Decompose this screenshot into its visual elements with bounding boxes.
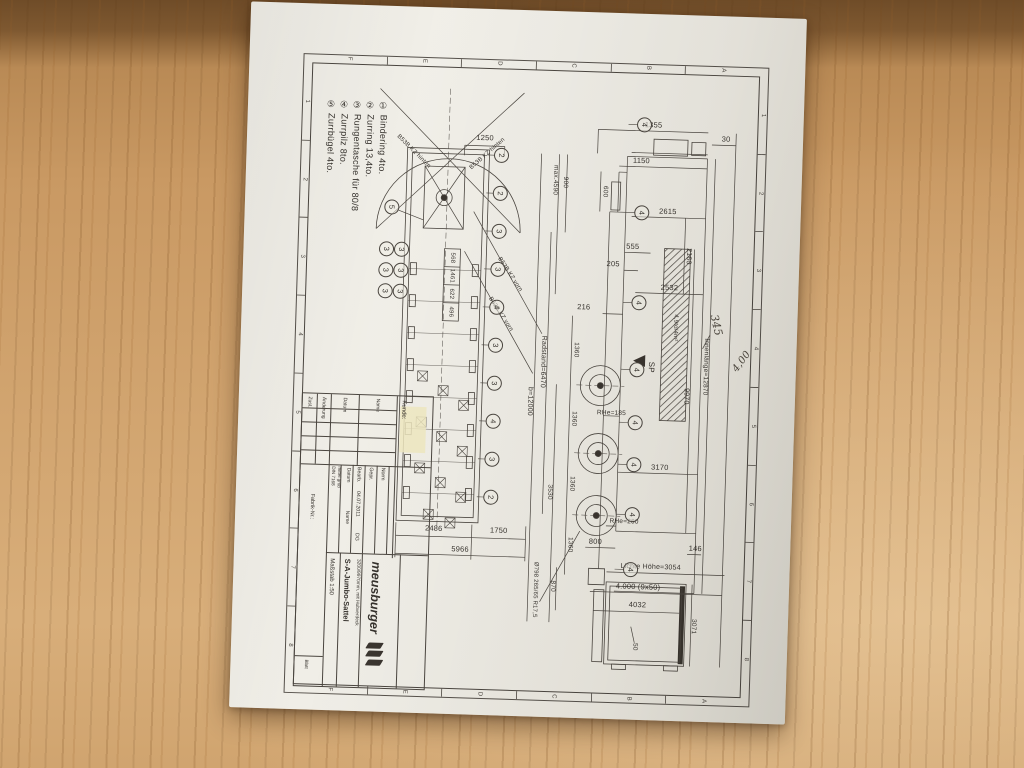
titleblock-divider [396, 554, 401, 688]
grid-reference: C [550, 694, 556, 699]
blatt-label: Blatt [303, 659, 308, 668]
dim-label: 205 [606, 260, 619, 268]
dim-label: 50 [631, 643, 638, 651]
titleblock-divider [326, 552, 428, 556]
dim-label: 2160 [685, 248, 693, 265]
dim-label: 4032 [629, 601, 647, 609]
grid-reference: E [421, 59, 427, 63]
bearb-name: DG [353, 533, 358, 541]
meusburger-logo [366, 639, 389, 674]
grid-reference: 2 [757, 192, 763, 196]
dim-label: 1150 [633, 157, 650, 165]
grid-reference: F [346, 57, 352, 61]
bearb-label: Bearb. [355, 467, 361, 482]
dim-label: 800 [589, 538, 602, 546]
dim-label: 216 [577, 303, 590, 311]
dim-label: 496 [447, 306, 453, 317]
product-subtitle: 3200/9970mm, mit Hubverdeck [353, 559, 360, 626]
dim-label: 1360 [566, 537, 573, 552]
grid-reference: 6 [748, 503, 754, 507]
titleblock-divider [374, 466, 378, 554]
dim-label: Innenlänge=12870 [701, 338, 709, 395]
bearb-date: 04.07.2011 [354, 491, 360, 517]
brand-name: meusburger [367, 561, 382, 634]
dim-label: 146 [689, 545, 702, 553]
dim-label: 30 [722, 136, 731, 144]
dim-label: 2615 [659, 208, 677, 216]
grid-reference: 5 [294, 410, 300, 414]
dim-label: 4.000 (9x50) [616, 582, 661, 591]
dim-label: 568 [449, 252, 455, 263]
dim-label: 900 [561, 177, 568, 189]
dim-label: max.4590 [551, 165, 558, 195]
dim-label: SP [647, 362, 655, 373]
product-title: S-A-Jumbo-Sattel [342, 559, 351, 622]
grid-reference: 5 [750, 425, 756, 429]
grid-reference: 4 [297, 332, 303, 336]
legend-item: ④ Zurrpilz 8to. [338, 100, 350, 165]
dim-label: 2532 [661, 284, 679, 292]
norm-label: Norm [379, 468, 385, 481]
col-name: Name [344, 511, 349, 524]
dim-label: RHe=185 [597, 410, 626, 417]
titleblock-divider [295, 655, 323, 657]
kunde-label: Kunde: [400, 400, 407, 419]
paper-sheet: 1250248617505966B53B KZ hintenB53B KZ hi… [229, 1, 807, 724]
titleblock-divider [362, 465, 366, 553]
gepr-label: Gepr. [367, 467, 373, 480]
dim-label: 9970 [682, 388, 690, 405]
dim-label: 1360 [570, 411, 577, 426]
col-datum: Datum [345, 468, 350, 483]
dim-label: 622 [448, 288, 454, 299]
grid-reference: B [625, 697, 631, 701]
dim-label: 1360 [568, 476, 575, 491]
drawing-frame: 1250248617505966B53B KZ hintenB53B KZ hi… [284, 53, 770, 707]
rev-header-datum: Datum [341, 397, 346, 412]
grid-reference: A [700, 699, 706, 703]
dim-label: 600 [601, 186, 608, 198]
dim-label: 1461 [448, 269, 454, 283]
dim-label: 3530 [545, 484, 552, 499]
grid-reference: 2 [302, 177, 308, 181]
titleblock-divider [392, 396, 398, 558]
titleblock-divider [315, 394, 318, 464]
grid-reference: 6 [292, 488, 298, 492]
titleblock-divider [357, 395, 360, 465]
dim-label: b=12000 [526, 387, 534, 416]
grid-reference: E [402, 689, 408, 693]
din-note: DIN 7168 [330, 466, 335, 486]
dim-label: 3071 [689, 619, 696, 634]
grid-reference: 1 [304, 99, 310, 103]
title-block: Zust. Änderung Datum Name DIN 7168 mitte… [293, 392, 434, 690]
grid-reference: 3 [299, 254, 305, 258]
grid-reference: F [327, 687, 333, 691]
grid-reference: 7 [745, 580, 751, 584]
titleblock-divider [336, 553, 341, 687]
grid-reference: 8 [287, 643, 293, 647]
dim-label: 870 [549, 580, 556, 592]
grid-reference: 8 [743, 658, 749, 662]
grid-reference: 3 [755, 269, 761, 273]
dim-label: 1360 [572, 342, 579, 357]
grid-reference: D [477, 692, 483, 697]
dim-label: 5966 [451, 545, 469, 553]
grid-reference: 4 [753, 347, 759, 351]
grid-reference: 1 [760, 114, 766, 118]
fabrik-nr-label: Fabrik-Nr.: [308, 493, 314, 519]
scale-label: Maßstab 1:50 [328, 558, 335, 595]
grid-reference: D [496, 61, 502, 66]
dim-label: 1250 [476, 134, 494, 142]
titleblock-divider [329, 394, 332, 464]
titleblock-divider [386, 466, 390, 554]
grid-reference: B [645, 66, 651, 70]
dim-label: 555 [626, 243, 639, 251]
grid-reference: C [570, 63, 576, 68]
grid-reference: A [720, 68, 726, 72]
grid-reference: 7 [289, 565, 295, 569]
dim-label: 4,9to/4m² [672, 314, 679, 341]
dim-label: 1750 [490, 526, 508, 534]
rev-header-zust: Zust. [306, 396, 311, 407]
dim-label: 3170 [651, 463, 669, 471]
